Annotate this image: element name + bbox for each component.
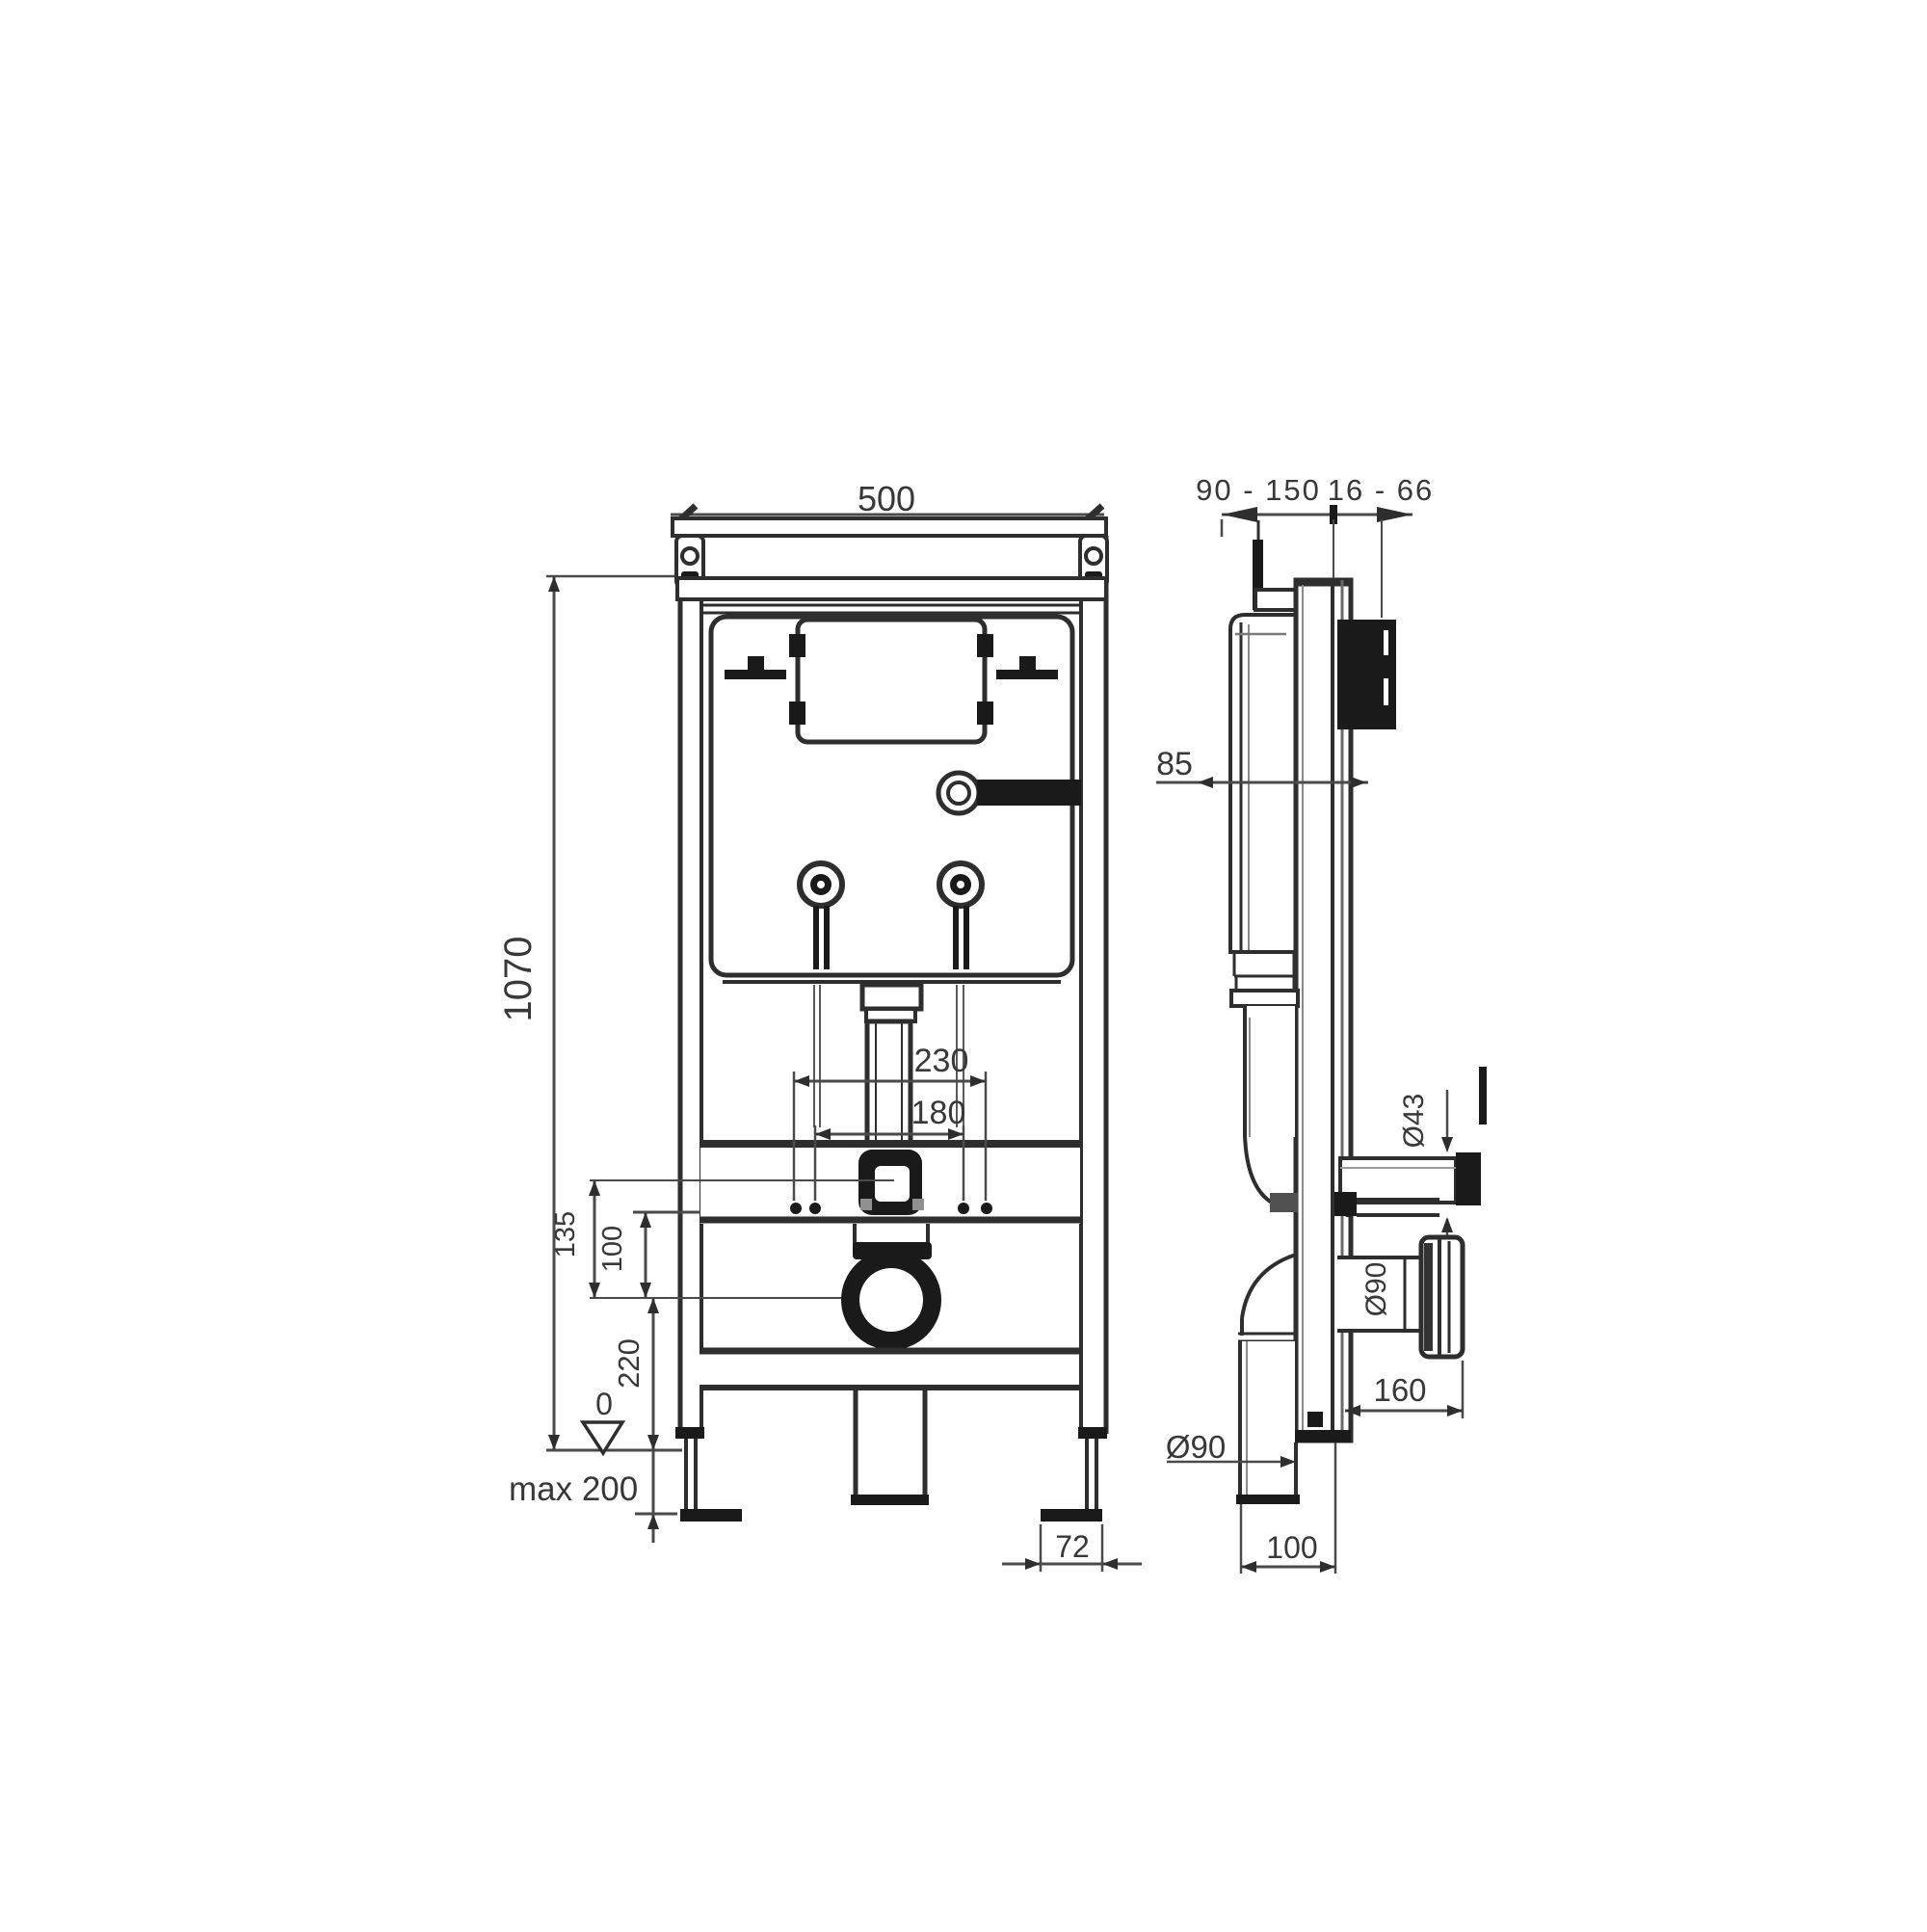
svg-text:160: 160 [1373, 1372, 1426, 1408]
svg-text:72: 72 [1055, 1529, 1090, 1564]
svg-text:1070: 1070 [497, 937, 540, 1022]
svg-text:Ø43: Ø43 [1398, 1094, 1430, 1149]
svg-text:100: 100 [1266, 1530, 1317, 1565]
svg-text:Ø90: Ø90 [1166, 1429, 1226, 1465]
svg-text:85: 85 [1156, 746, 1193, 782]
svg-text:0: 0 [595, 1387, 613, 1421]
svg-text:90 - 150: 90 - 150 [1196, 473, 1321, 507]
svg-text:180: 180 [911, 1095, 966, 1131]
svg-text:500: 500 [858, 479, 915, 518]
svg-text:100: 100 [597, 1226, 628, 1272]
svg-text:220: 220 [612, 1338, 646, 1389]
svg-text:max 200: max 200 [509, 1470, 638, 1508]
svg-text:16 - 66: 16 - 66 [1328, 473, 1435, 507]
svg-text:230: 230 [914, 1043, 969, 1079]
svg-text:Ø90: Ø90 [1360, 1262, 1392, 1317]
svg-text:135: 135 [550, 1211, 581, 1257]
